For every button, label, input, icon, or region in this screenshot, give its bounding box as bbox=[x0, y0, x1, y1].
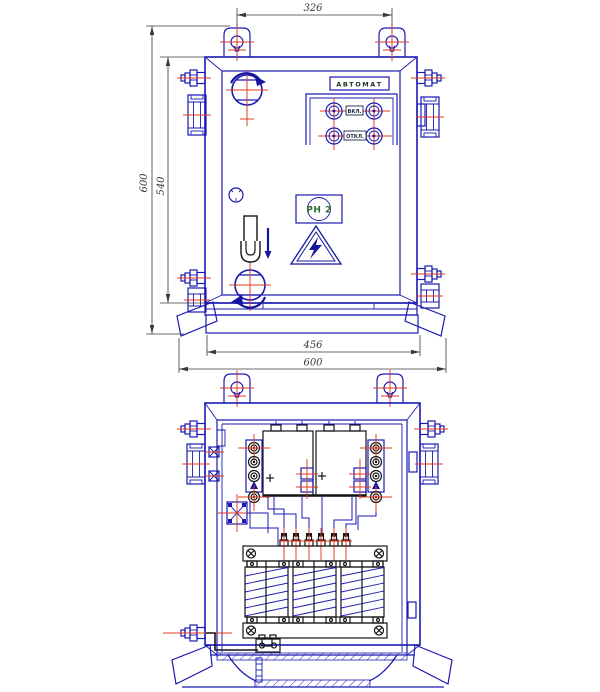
interior-plinth bbox=[172, 645, 452, 687]
on-label: ВКЛ. bbox=[348, 109, 362, 115]
floor-section bbox=[217, 653, 407, 660]
cable-gland-icon bbox=[177, 70, 211, 86]
wall-notch bbox=[217, 430, 225, 446]
technical-drawing: АВТОМАТ ВКЛ. ОТКЛ. bbox=[0, 0, 600, 692]
hinge-icon bbox=[417, 284, 443, 308]
lifting-lug-icon bbox=[220, 24, 254, 61]
rotate-ccw-arrow-icon bbox=[231, 295, 243, 306]
terminal-strip-left bbox=[238, 434, 270, 511]
hinge-bolt bbox=[205, 471, 224, 481]
front-left-wing bbox=[177, 302, 217, 336]
svg-text:600: 600 bbox=[303, 358, 323, 369]
lifting-lug-icon bbox=[375, 24, 409, 61]
lifting-lug-icon bbox=[373, 370, 407, 407]
door-key-icon bbox=[241, 216, 272, 262]
automat-label: АВТОМАТ bbox=[336, 81, 382, 89]
door-lock-top[interactable] bbox=[226, 70, 268, 126]
hinge-bolt bbox=[205, 447, 224, 457]
wall-bracket bbox=[408, 602, 416, 618]
interior-right-wing bbox=[413, 645, 452, 684]
transformer bbox=[243, 528, 387, 646]
cable-gland-icon bbox=[411, 70, 445, 86]
dimension-body-height: 540 bbox=[156, 57, 205, 303]
svg-text:456: 456 bbox=[302, 340, 323, 351]
drawing-page: АВТОМАТ ВКЛ. ОТКЛ. bbox=[0, 0, 600, 692]
front-plinth bbox=[177, 302, 445, 336]
hazard-triangle-icon bbox=[291, 226, 341, 264]
cable-gland-icon bbox=[177, 421, 211, 437]
svg-text:600: 600 bbox=[139, 173, 150, 193]
hinge-icon bbox=[416, 97, 444, 137]
mark-plus bbox=[266, 474, 274, 482]
cable-gland-icon bbox=[177, 270, 211, 286]
wiring-harness bbox=[247, 421, 376, 546]
terminal-strip-right bbox=[360, 434, 392, 511]
front-view: АВТОМАТ ВКЛ. ОТКЛ. bbox=[139, 3, 446, 373]
automat-nameplate: АВТОМАТ bbox=[330, 77, 389, 90]
dimension-plinth-width: 456 bbox=[207, 335, 420, 356]
apparatus-box-right bbox=[316, 425, 366, 496]
off-label: ОТКЛ. bbox=[346, 134, 364, 140]
svg-text:326: 326 bbox=[303, 3, 323, 14]
wiring-post bbox=[296, 459, 318, 499]
apparatus-box-left bbox=[263, 425, 313, 496]
mark-plus bbox=[318, 472, 326, 480]
lifting-lug-icon bbox=[220, 370, 254, 407]
cable-gland-icon bbox=[411, 266, 445, 282]
hinge-icon bbox=[183, 95, 211, 135]
control-panel: ВКЛ. ОТКЛ. bbox=[306, 94, 397, 150]
channel-section bbox=[255, 680, 370, 687]
relay-plate: РН 2 bbox=[296, 195, 342, 223]
dimension-overall-height: 600 bbox=[139, 26, 230, 334]
vent-hole bbox=[229, 188, 243, 202]
down-arrow-icon bbox=[265, 251, 272, 259]
relay-label: РН 2 bbox=[306, 206, 332, 216]
wall-bracket bbox=[409, 452, 417, 472]
svg-text:540: 540 bbox=[156, 176, 167, 196]
dimension-lug-spacing: 326 bbox=[237, 3, 392, 26]
cable-gland-icon bbox=[414, 421, 448, 437]
interior-left-wing bbox=[172, 645, 212, 684]
interior-view bbox=[163, 370, 452, 687]
